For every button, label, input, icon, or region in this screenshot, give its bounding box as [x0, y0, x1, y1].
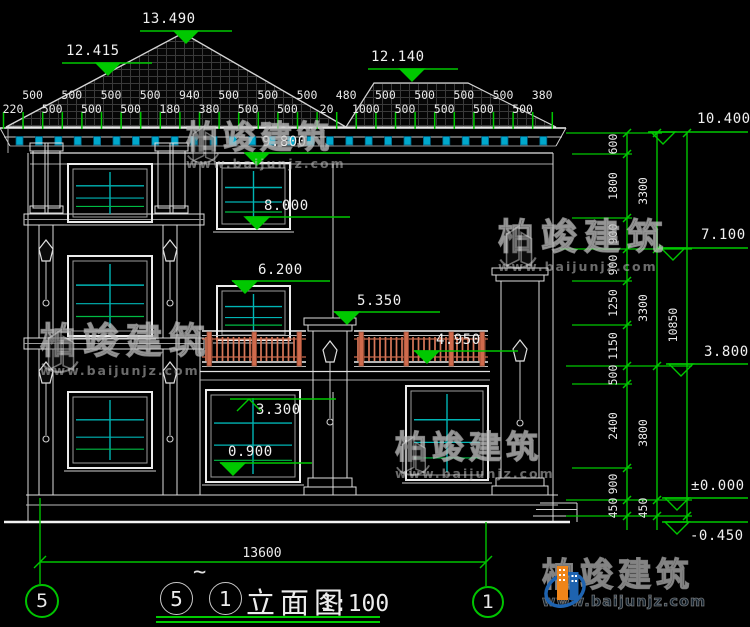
- eave-brackets: [16, 137, 547, 146]
- brand-logo: 柏竣建筑 www.baijunjz.com: [542, 558, 750, 610]
- title-axis-from-bubble: 5: [160, 582, 193, 615]
- axis-bubble-5: 5: [25, 584, 59, 618]
- title-underline-1: [156, 616, 380, 618]
- elevation-drawing-canvas: 2205005005005005005005001809403805005005…: [0, 0, 750, 627]
- building-elevation-linework: [0, 0, 750, 627]
- axis-bubble-1: 1: [472, 586, 504, 618]
- drawing-scale: 1:100: [320, 591, 389, 617]
- roof: [0, 33, 566, 146]
- side-steps: [533, 503, 577, 522]
- left-columns: [24, 143, 204, 495]
- windows: [64, 163, 492, 485]
- axis-number-right: 1: [482, 591, 494, 613]
- axis-number-left: 5: [36, 590, 48, 612]
- title-underline-2: [156, 621, 380, 623]
- title-axis-from: 5: [170, 587, 183, 611]
- title-axis-to: 1: [219, 587, 232, 611]
- balcony-railing: [202, 331, 488, 367]
- title-axis-to-bubble: 1: [209, 582, 242, 615]
- brand-logo-icon: [542, 558, 590, 614]
